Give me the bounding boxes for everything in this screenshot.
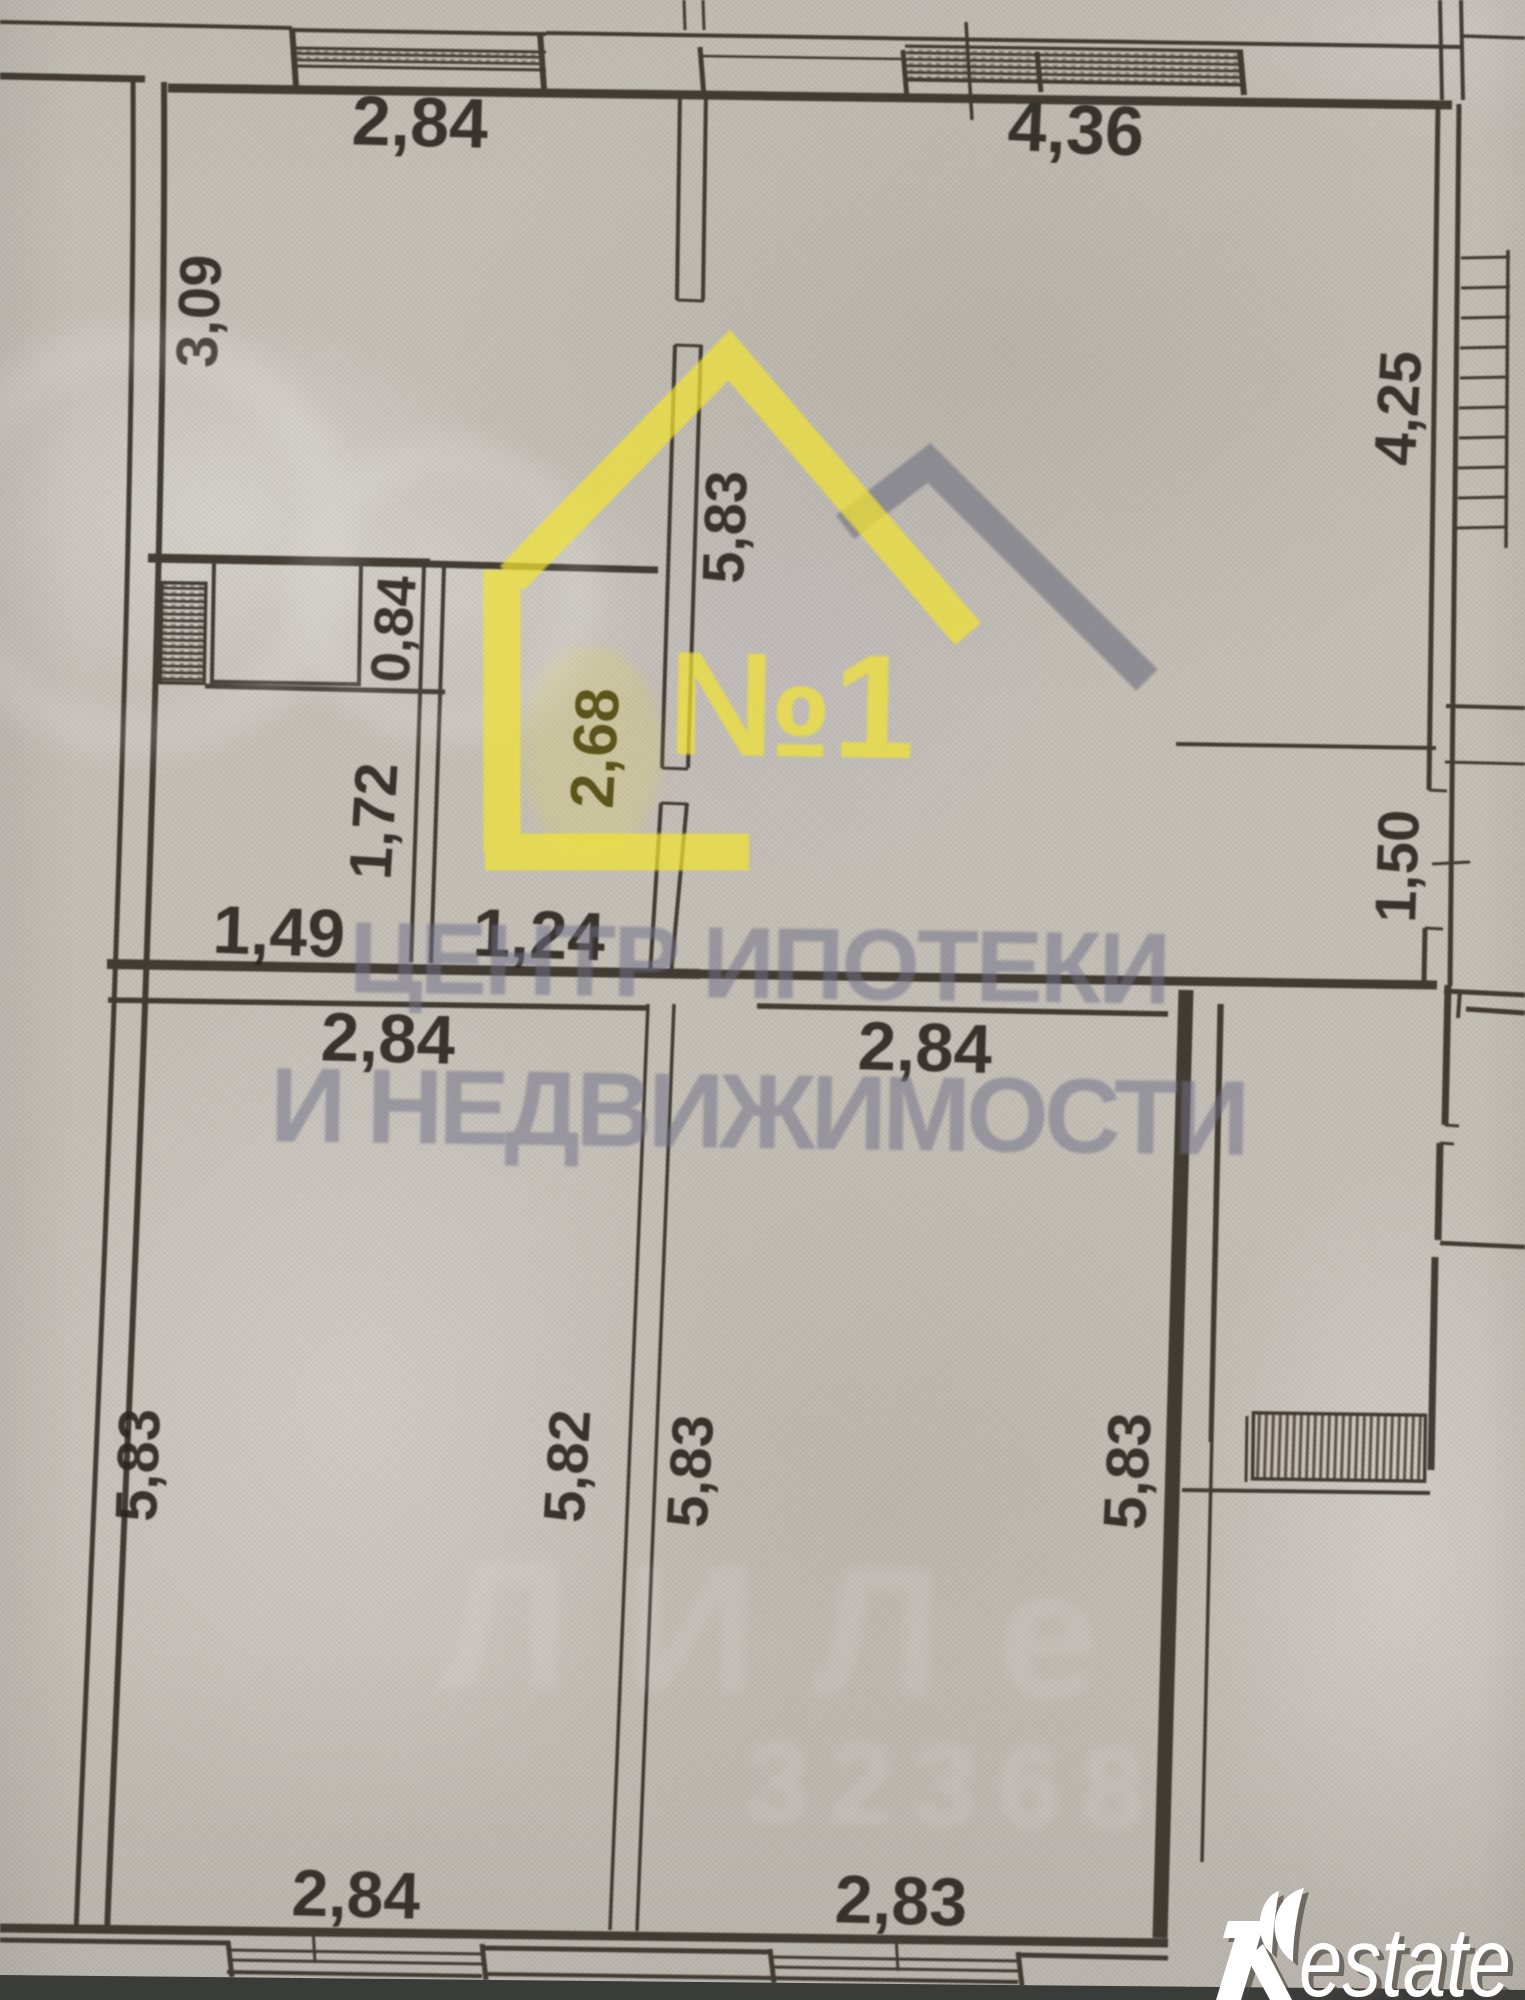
svg-text:5,83: 5,83 — [691, 470, 760, 585]
svg-text:5,83: 5,83 — [104, 1408, 173, 1523]
svg-text:4,25: 4,25 — [1362, 349, 1435, 468]
svg-text:2,68: 2,68 — [558, 686, 633, 810]
svg-text:5,83: 5,83 — [1091, 1411, 1164, 1531]
svg-text:2,84: 2,84 — [291, 1855, 422, 1932]
svg-text:5,83: 5,83 — [655, 1413, 727, 1530]
svg-text:2,83: 2,83 — [834, 1861, 968, 1940]
svg-text:4,36: 4,36 — [1006, 87, 1146, 171]
svg-text:estate: estate — [1299, 1907, 1511, 2000]
svg-text:5,82: 5,82 — [532, 1408, 604, 1525]
svg-text:И НЕДВИЖИМОСТИ: И НЕДВИЖИМОСТИ — [269, 1046, 1251, 1178]
svg-text:ЦЕНТР ИПОТЕКИ: ЦЕНТР ИПОТЕКИ — [348, 902, 1171, 1025]
svg-text:1,72: 1,72 — [336, 761, 410, 882]
svg-text:1,49: 1,49 — [211, 892, 346, 973]
svg-text:2,84: 2,84 — [351, 81, 489, 163]
svg-text:0,84: 0,84 — [358, 573, 427, 685]
svg-text:32368: 32368 — [744, 1718, 1146, 1853]
svg-text:ЛИЛе: ЛИЛе — [438, 1521, 1101, 1738]
svg-text:1,50: 1,50 — [1363, 809, 1432, 924]
svg-text:№1: №1 — [666, 621, 916, 790]
